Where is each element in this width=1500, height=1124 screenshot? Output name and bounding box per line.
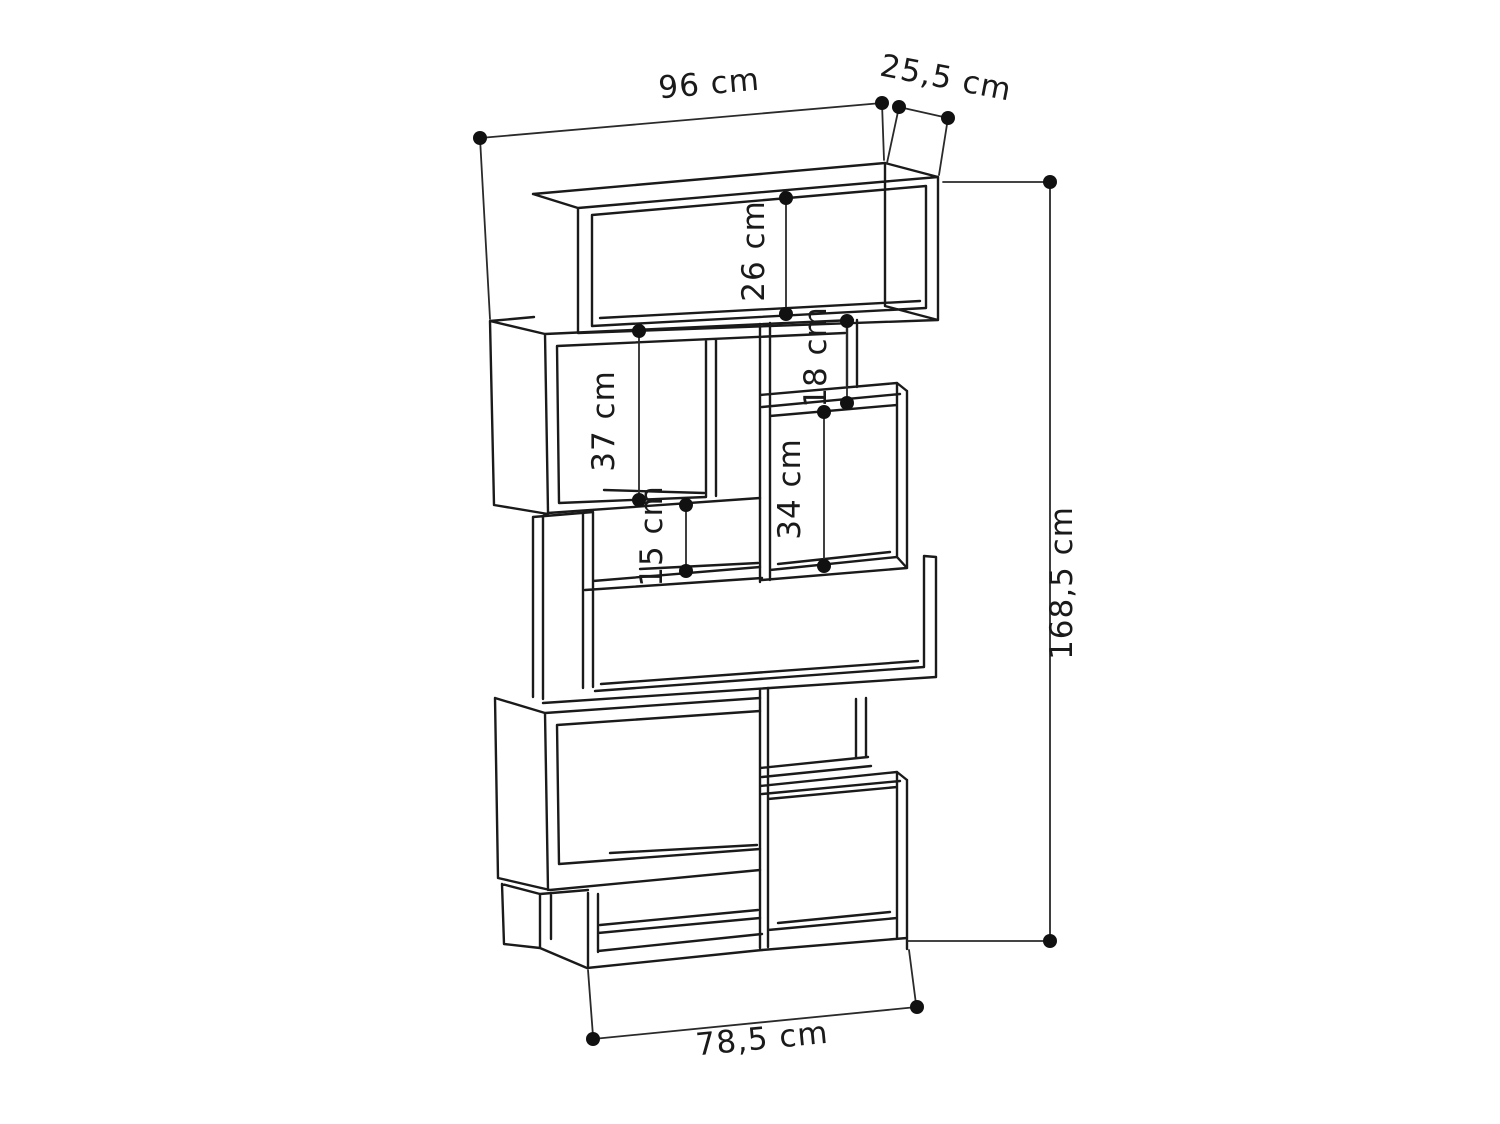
dimension-middle-slot: 15 cm: [634, 485, 693, 587]
dimension-endpoint-dot: [817, 559, 831, 573]
bookcase-drawing: [490, 163, 938, 968]
lower-left-box-outline: [495, 698, 760, 890]
dimension-small-niche: 18 cm: [798, 306, 854, 410]
bookcase-dimension-diagram: 96 cm 25,5 cm 168,5 cm 78,5 cm: [0, 0, 1500, 1124]
dimension-endpoint-dot: [1043, 934, 1057, 948]
overall-height-label: 168,5 cm: [1044, 506, 1080, 660]
small-niche-label: 18 cm: [798, 306, 834, 408]
lower-right-column-outline: [760, 688, 907, 950]
dimension-endpoint-dot: [779, 307, 793, 321]
middle-band-outline: [533, 512, 936, 703]
dimension-line: [480, 103, 884, 319]
dimension-endpoint-dot: [875, 96, 889, 110]
dimension-endpoint-dot: [779, 191, 793, 205]
dimension-endpoint-dot: [679, 564, 693, 578]
top-shelf-label: 26 cm: [736, 200, 772, 302]
middle-slot-label: 15 cm: [634, 485, 670, 587]
dimension-drawing-canvas: 96 cm 25,5 cm 168,5 cm 78,5 cm: [0, 0, 1500, 1124]
dimension-endpoint-dot: [817, 405, 831, 419]
base-plinth: [502, 884, 762, 968]
base-plinth-outline: [502, 884, 762, 968]
dimension-endpoint-dot: [892, 100, 906, 114]
dimension-right-shelf: 34 cm: [772, 405, 831, 573]
base-width-label: 78,5 cm: [694, 1015, 830, 1064]
dimension-endpoint-dot: [632, 324, 646, 338]
dimension-endpoint-dot: [941, 111, 955, 125]
depth-label: 25,5 cm: [877, 48, 1015, 109]
overall-width-label: 96 cm: [657, 62, 761, 107]
dimension-endpoint-dot: [1043, 175, 1057, 189]
dimension-endpoint-dot: [679, 498, 693, 512]
dimension-endpoint-dot: [586, 1032, 600, 1046]
dimension-endpoint-dot: [840, 396, 854, 410]
dimension-upper-left-shelf: 37 cm: [586, 324, 646, 507]
dimension-overall-height: 168,5 cm: [908, 175, 1080, 948]
middle-band: [533, 512, 936, 703]
dimension-depth: 25,5 cm: [877, 48, 1015, 175]
dimension-base-width: 78,5 cm: [586, 950, 924, 1063]
dimension-endpoint-dot: [910, 1000, 924, 1014]
lower-left-box: [495, 698, 760, 890]
dimension-line: [908, 182, 1050, 941]
dimension-overall-width: 96 cm: [473, 62, 889, 319]
lower-right-column: [760, 688, 907, 950]
dimension-top-shelf: 26 cm: [736, 191, 793, 321]
right-shelf-label: 34 cm: [772, 438, 808, 540]
dimension-endpoint-dot: [473, 131, 487, 145]
upper-left-shelf-label: 37 cm: [586, 370, 622, 472]
dimension-endpoint-dot: [840, 314, 854, 328]
